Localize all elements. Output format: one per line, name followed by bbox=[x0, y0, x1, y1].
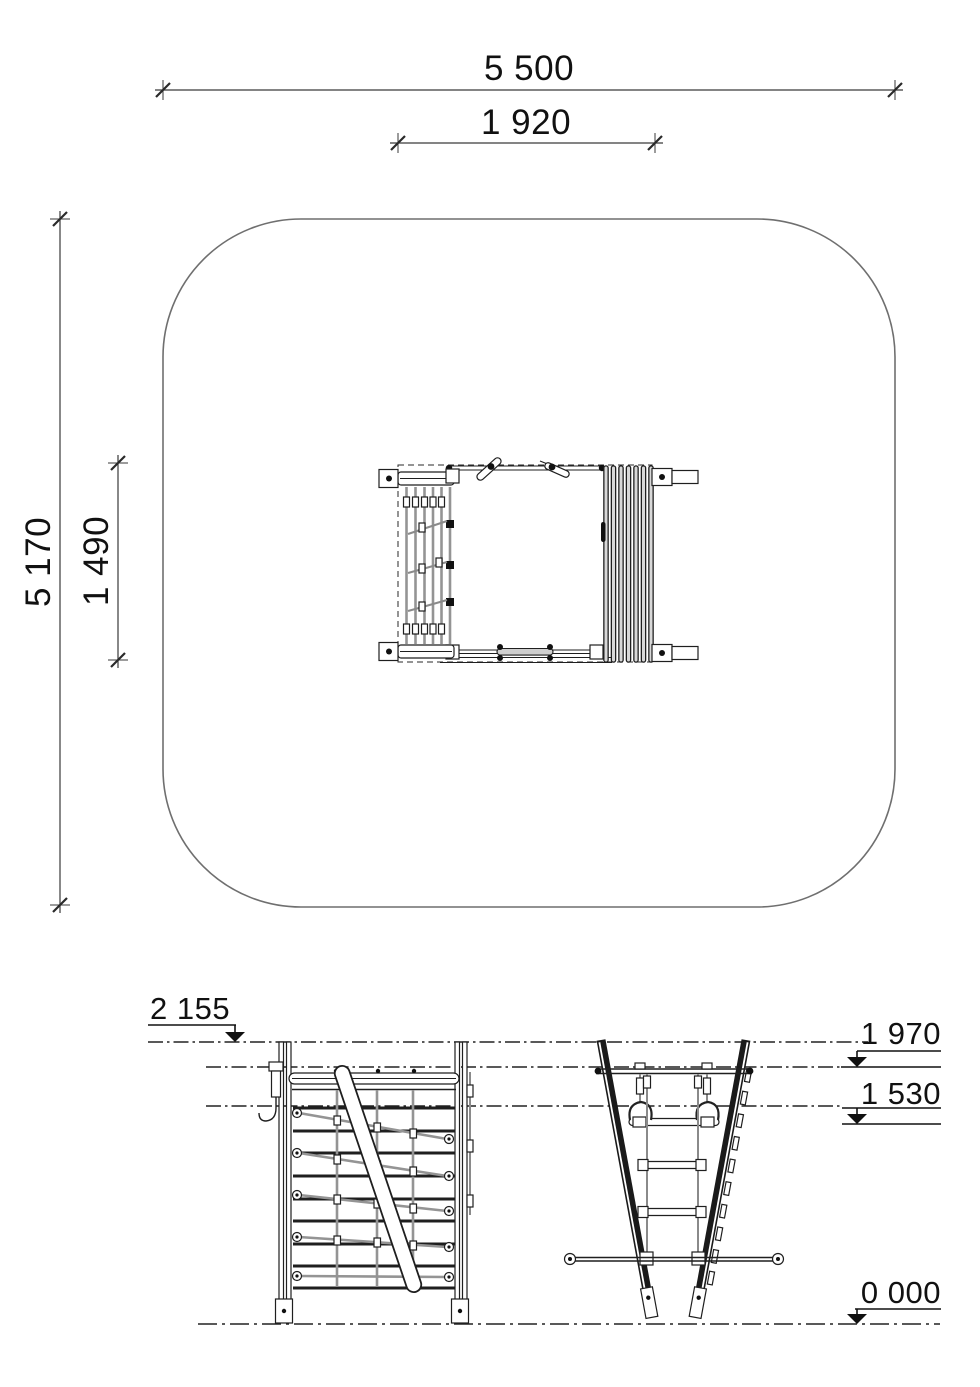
drawing-canvas: 5 500 1 920 5 170 1 490 bbox=[0, 0, 980, 1387]
level-lines bbox=[148, 1042, 940, 1324]
post-rope bbox=[467, 1072, 473, 1215]
bottom-rail-plan bbox=[440, 644, 612, 663]
aframe-elevation bbox=[565, 1039, 784, 1319]
level-marker-1530: 1 530 bbox=[842, 1076, 941, 1124]
dim-equipment-width-label: 1 920 bbox=[481, 103, 571, 142]
dim-overall-depth: 5 170 bbox=[19, 211, 70, 913]
level-1530-label: 1 530 bbox=[861, 1076, 941, 1111]
elevation-view: 2 155 1 970 1 530 0 000 bbox=[148, 991, 944, 1324]
dim-overall-width-label: 5 500 bbox=[484, 49, 574, 88]
level-marker-2155: 2 155 bbox=[148, 991, 245, 1042]
level-1970-label: 1 970 bbox=[861, 1016, 941, 1051]
rope-ladder bbox=[638, 1074, 706, 1265]
dim-equipment-depth: 1 490 bbox=[77, 455, 128, 668]
net-module-plan bbox=[379, 469, 459, 661]
hook-bump-plan bbox=[601, 522, 606, 542]
level-1530-arrow bbox=[847, 1114, 867, 1124]
equipment-plan bbox=[379, 456, 698, 662]
aframe-tubes-plan bbox=[606, 468, 651, 660]
level-0000-arrow bbox=[847, 1314, 867, 1324]
dim-overall-depth-label: 5 170 bbox=[19, 517, 58, 607]
frame-top-rail bbox=[289, 1069, 459, 1090]
dim-equipment-width: 1 920 bbox=[390, 103, 663, 153]
level-2155-label: 2 155 bbox=[150, 991, 230, 1026]
aframe-top-bar bbox=[595, 1063, 754, 1074]
top-rail-plan bbox=[446, 465, 605, 471]
level-0000-label: 0 000 bbox=[861, 1275, 941, 1310]
leg-cleats bbox=[707, 1069, 751, 1285]
level-marker-0000: 0 000 bbox=[847, 1275, 941, 1324]
drawing-page: 5 500 1 920 5 170 1 490 bbox=[0, 0, 980, 1387]
level-1970-arrow bbox=[847, 1057, 867, 1067]
dim-equipment-depth-label: 1 490 bbox=[77, 516, 116, 606]
net-rails-plan bbox=[407, 487, 451, 644]
climbing-frame-elevation bbox=[259, 1042, 473, 1323]
aframe-bottom-bar bbox=[565, 1254, 784, 1265]
dim-overall-width: 5 500 bbox=[155, 49, 903, 100]
safety-zone-boundary bbox=[163, 219, 895, 907]
net-rings bbox=[293, 1109, 454, 1282]
plan-view: 5 500 1 920 5 170 1 490 bbox=[19, 49, 903, 913]
level-2155-arrow bbox=[225, 1032, 245, 1042]
swing-hooks-plan bbox=[476, 456, 571, 481]
trapeze bbox=[629, 1074, 719, 1127]
frame-feet bbox=[276, 1299, 469, 1323]
aframe-module-plan bbox=[601, 468, 698, 662]
